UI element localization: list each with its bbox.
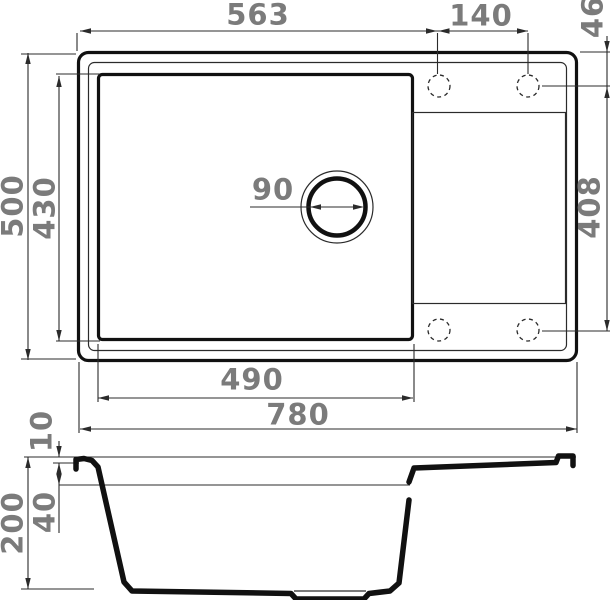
faucet-hole bbox=[428, 75, 450, 97]
drawing-canvas bbox=[0, 0, 611, 600]
dim-label-563: 563 bbox=[226, 1, 290, 30]
arrowhead bbox=[56, 330, 61, 341]
arrowhead bbox=[98, 395, 109, 400]
arrowhead bbox=[80, 28, 91, 33]
arrowhead bbox=[604, 320, 609, 331]
top-view-dimensions bbox=[21, 31, 610, 433]
arrowhead bbox=[80, 426, 91, 431]
cross-section-view bbox=[21, 456, 576, 599]
section-profile-bowl bbox=[76, 459, 409, 600]
arrowhead bbox=[25, 53, 30, 64]
arrowhead bbox=[310, 204, 321, 209]
drainboard-outline bbox=[413, 113, 566, 304]
dim-label-490: 490 bbox=[220, 366, 284, 395]
dim-label-408: 408 bbox=[576, 175, 605, 239]
arrowhead bbox=[353, 204, 364, 209]
dim-label-10: 10 bbox=[28, 410, 57, 452]
arrowhead bbox=[25, 578, 30, 589]
arrowhead bbox=[56, 474, 61, 485]
dim-label-46: 46 bbox=[579, 0, 608, 38]
top-view bbox=[79, 53, 577, 361]
sink-technical-drawing: 563 140 46 500 430 90 408 490 780 10 40 … bbox=[0, 0, 611, 600]
faucet-hole bbox=[517, 319, 539, 341]
arrowhead bbox=[25, 457, 30, 468]
dim-label-430: 430 bbox=[31, 176, 60, 240]
faucet-hole bbox=[428, 319, 450, 341]
section-profile-drainboard bbox=[409, 456, 573, 482]
arrowhead bbox=[426, 28, 437, 33]
faucet-hole bbox=[517, 75, 539, 97]
arrowhead bbox=[566, 426, 577, 431]
arrowhead bbox=[25, 349, 30, 360]
dim-label-140: 140 bbox=[449, 2, 513, 31]
arrowhead bbox=[517, 28, 528, 33]
arrowhead bbox=[402, 395, 413, 400]
dim-label-200: 200 bbox=[0, 491, 28, 555]
arrowhead bbox=[56, 463, 61, 474]
dim-label-500: 500 bbox=[0, 174, 28, 238]
dim-label-780: 780 bbox=[266, 401, 330, 430]
arrowhead bbox=[604, 87, 609, 98]
arrowhead bbox=[604, 41, 609, 52]
arrowhead bbox=[439, 28, 450, 33]
dim-label-40: 40 bbox=[31, 491, 60, 533]
dim-label-90: 90 bbox=[252, 176, 294, 205]
arrowhead bbox=[56, 76, 61, 87]
